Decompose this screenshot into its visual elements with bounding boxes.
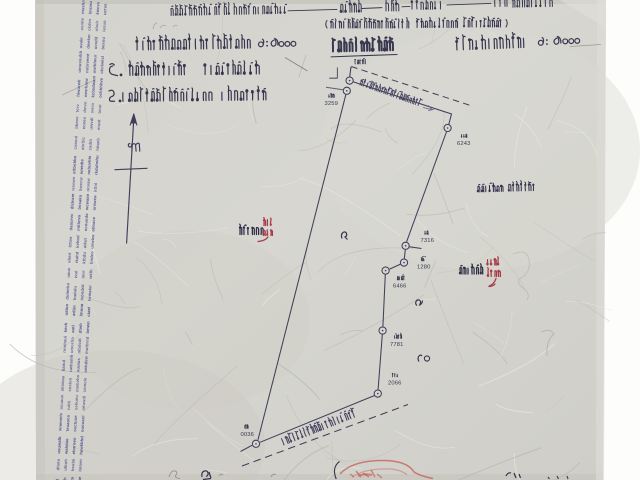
svg-text:lnuluiu: lnuluiu <box>72 285 78 300</box>
svg-text:ulbuh: ulbuh <box>63 459 69 471</box>
svg-text:ornwrw: ornwrw <box>92 194 98 210</box>
svg-text:mwbvho: mwbvho <box>74 374 80 392</box>
svg-text:lctow: lctow <box>67 236 73 248</box>
svg-text:uwhsmh: uwhsmh <box>68 354 74 372</box>
svg-text:kech: kech <box>63 322 69 332</box>
svg-text:cmncie: cmncie <box>82 377 88 393</box>
svg-text:lmlvm: lmlvm <box>77 459 83 472</box>
svg-text:dtwh: dtwh <box>78 323 84 334</box>
svg-text:usmte: usmte <box>79 17 85 30</box>
svg-text:tianul: tianul <box>61 360 67 372</box>
svg-text:mtuwdl: mtuwdl <box>81 396 87 411</box>
svg-text:walvbie: walvbie <box>64 438 70 455</box>
svg-text:nlbdcdi: nlbdcdi <box>76 338 82 354</box>
svg-text:imcwu: imcwu <box>87 0 93 14</box>
svg-text:iusua: iusua <box>101 20 107 32</box>
svg-text:7316: 7316 <box>421 238 435 244</box>
svg-text:snsiun: snsiun <box>67 377 73 391</box>
svg-text:daacevc: daacevc <box>68 213 74 231</box>
svg-text:usuwalb: usuwalb <box>56 436 62 454</box>
svg-text:uvwbw: uvwbw <box>90 234 96 249</box>
svg-text:acuaue: acuaue <box>59 394 65 410</box>
svg-text:6466: 6466 <box>393 283 407 289</box>
svg-text:rkahd: rkahd <box>74 251 80 263</box>
svg-text:teuauoo: teuauoo <box>65 414 71 431</box>
svg-text:0036: 0036 <box>241 432 255 438</box>
svg-text:atloace: atloace <box>90 216 96 232</box>
svg-text:arlbn: arlbn <box>71 305 77 316</box>
svg-text:vheri: vheri <box>67 252 73 263</box>
svg-text:hsubk: hsubk <box>70 458 76 471</box>
svg-text:torv: torv <box>75 103 80 112</box>
svg-text:mitlmva: mitlmva <box>76 214 82 231</box>
svg-text:7781: 7781 <box>390 342 404 348</box>
svg-text:cctum: cctum <box>69 476 75 480</box>
svg-text:bbevv: bbevv <box>74 116 80 129</box>
svg-text:ovctuue: ovctuue <box>72 415 78 432</box>
svg-text:dulmrku: dulmrku <box>65 282 71 299</box>
svg-text:lvondck: lvondck <box>79 284 85 301</box>
svg-text:lwmaivr: lwmaivr <box>87 284 93 300</box>
svg-text:nuuius: nuuius <box>75 357 81 372</box>
svg-text:dwekm: dwekm <box>86 34 92 49</box>
svg-text:ohclwkcl: ohclwkcl <box>99 55 105 73</box>
svg-text:hiwurwii: hiwurwii <box>76 79 82 96</box>
svg-text:nesrlunw: nesrlunw <box>83 77 89 97</box>
svg-text:wklh: wklh <box>88 269 94 280</box>
svg-text:umorrlo: umorrlo <box>69 336 75 353</box>
svg-text:wsowe: wsowe <box>70 176 76 192</box>
svg-text:uwihheur: uwihheur <box>92 54 98 74</box>
svg-text:uvakr: uvakr <box>78 36 84 48</box>
svg-text:bmwn: bmwn <box>85 321 91 334</box>
svg-text:bwccw: bwccw <box>78 176 84 191</box>
svg-text:mutbrnd: mutbrnd <box>84 336 90 354</box>
svg-text:oehueu: oehueu <box>73 395 79 411</box>
svg-text:luliti: luliti <box>66 401 71 410</box>
svg-text:bnut: bnut <box>97 104 103 114</box>
svg-text:nebuvhte: nebuvhte <box>86 155 92 175</box>
svg-text:kvhod: kvhod <box>75 235 81 248</box>
svg-text:wcwaan: wcwaan <box>84 193 90 211</box>
svg-text:swcv: swcv <box>89 102 95 113</box>
svg-text:dhvtn: dhvtn <box>55 458 61 470</box>
svg-text:uikut: uikut <box>82 237 88 248</box>
svg-text:6243: 6243 <box>457 141 471 147</box>
svg-text:ktbdu: ktbdu <box>81 251 87 263</box>
svg-text:1280: 1280 <box>417 264 431 270</box>
svg-text:auti: auti <box>70 325 75 333</box>
svg-text:uatuo: uatuo <box>64 303 70 315</box>
svg-text:hitaeb: hitaeb <box>95 138 101 151</box>
svg-text:msshm: msshm <box>80 0 86 14</box>
svg-text:ivietdte: ivietdte <box>79 158 85 174</box>
svg-text:bndco: bndco <box>89 251 95 264</box>
svg-text:huwkbhd: huwkbhd <box>78 436 84 455</box>
svg-text:caditi: caditi <box>87 139 93 151</box>
svg-text:kttnl: kttnl <box>93 183 98 192</box>
svg-text:bosaka: bosaka <box>77 194 83 210</box>
svg-text:abrbic: abrbic <box>80 136 86 150</box>
svg-text:eoeeu: eoeeu <box>81 116 87 129</box>
svg-text:2066: 2066 <box>388 380 402 386</box>
svg-text:uwvdl: uwvdl <box>89 117 95 129</box>
svg-text:ucrvs: ucrvs <box>102 3 108 15</box>
svg-text:rmuhaui: rmuhaui <box>62 336 68 353</box>
svg-text:eltbobbu: eltbobbu <box>71 155 77 174</box>
svg-text:dmvn: dmvn <box>82 101 88 113</box>
svg-text:dlckwm: dlckwm <box>69 193 75 209</box>
svg-text:ucsdd: ucsdd <box>93 36 99 49</box>
svg-text:ehnrneo: ehnrneo <box>71 437 77 454</box>
svg-text:ocnuoda: ocnuoda <box>83 213 89 232</box>
svg-text:awhdew: awhdew <box>83 355 89 372</box>
svg-text:wnemelv: wnemelv <box>57 412 63 432</box>
svg-text:nnvaw: nnvaw <box>85 177 91 191</box>
svg-text:uauv: uauv <box>66 267 72 278</box>
svg-text:erant: erant <box>96 119 102 130</box>
svg-text:besou: besou <box>100 36 106 49</box>
svg-text:ctaei: ctaei <box>86 307 92 317</box>
svg-text:kwcvs: kwcvs <box>95 1 101 15</box>
svg-text:ckdos: ckdos <box>86 18 92 31</box>
svg-text:lmrl: lmrl <box>80 270 85 278</box>
svg-text:obuir: obuir <box>94 20 100 31</box>
svg-text:lmnna: lmnna <box>78 303 84 316</box>
svg-text:nuouaol: nuouaol <box>80 415 86 432</box>
svg-text:cnauul: cnauul <box>73 136 79 150</box>
svg-text:ivul: ivul <box>73 270 78 278</box>
svg-text:akawaa: akawaa <box>60 375 66 391</box>
svg-text:3259: 3259 <box>325 101 339 107</box>
